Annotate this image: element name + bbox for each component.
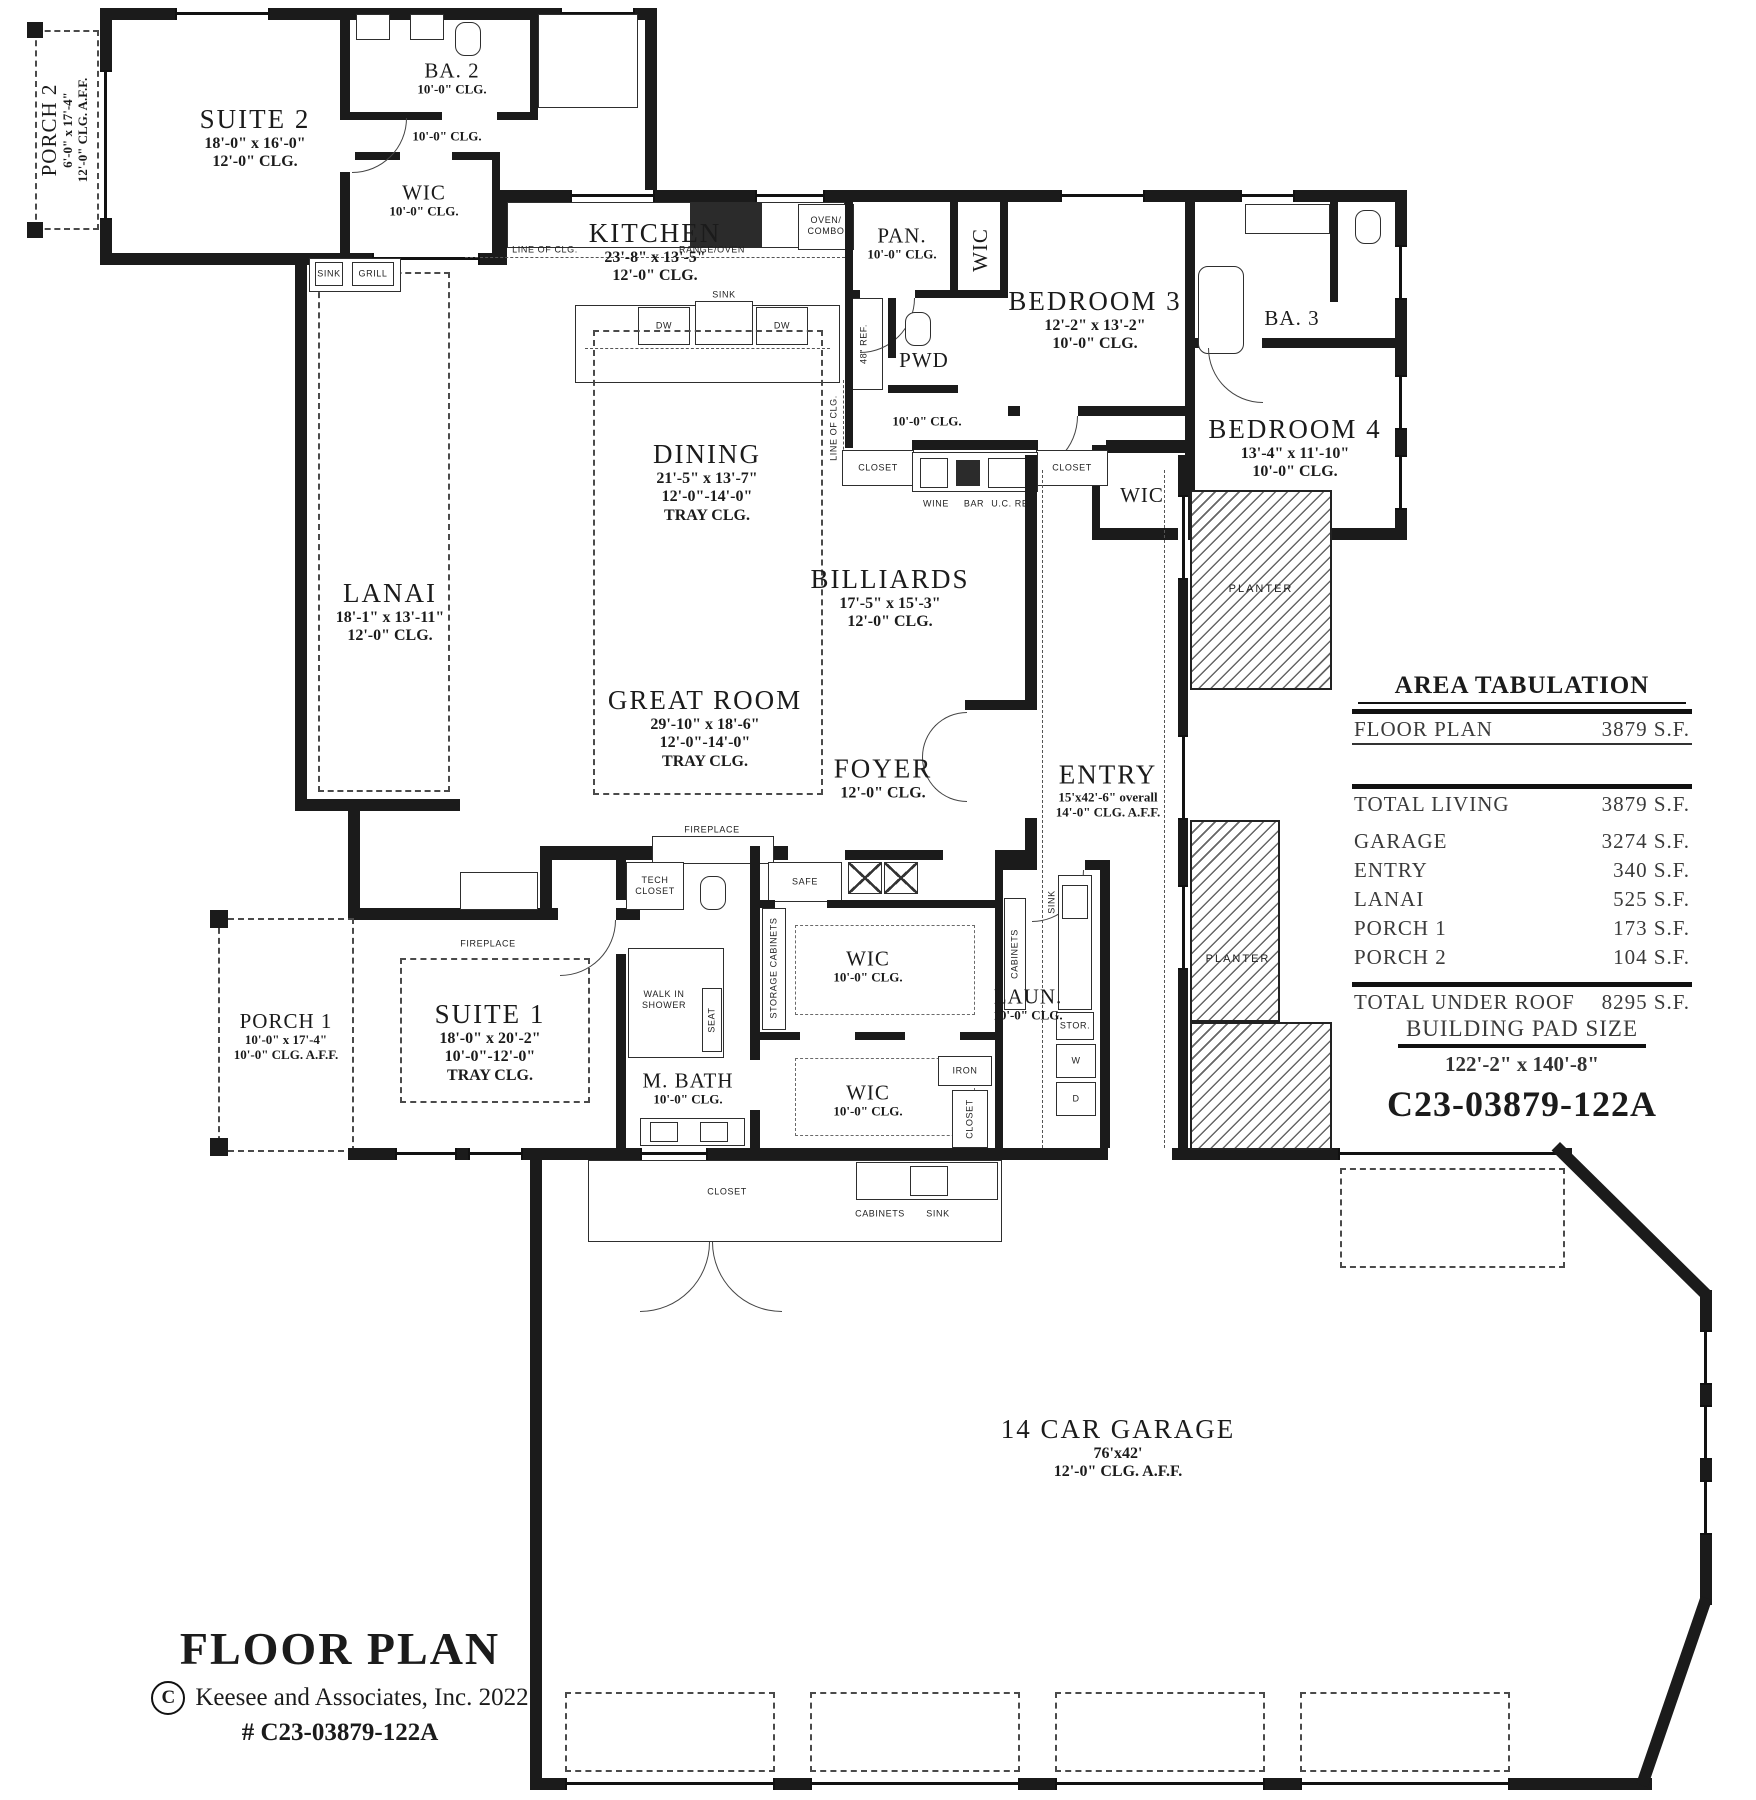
room-name: WIC [833,1080,902,1104]
room-name: WIC [1120,483,1164,507]
room-name: WIC [833,946,902,970]
room-name: M. BATH [642,1068,733,1092]
title-block: FLOOR PLAN C Keesee and Associates, Inc.… [120,1622,560,1747]
room-clg: 10'-0" CLG. [412,130,481,145]
window [1338,1148,1566,1160]
room-name: LAUN. [993,984,1062,1008]
label-text: CLOSET [635,886,675,897]
room-label-suite2: SUITE 2 18'-0" x 16'-0" 12'-0" CLG. [200,104,311,172]
room-label-great-room: GREAT ROOM 29'-10" x 18'-6" 12'-0"-14'-0… [608,685,802,771]
area-row-value: 173 S.F. [1613,916,1690,941]
window [1178,735,1188,820]
room-clg: TRAY CLG. [435,1067,546,1085]
wall [845,298,853,448]
wall [750,1110,760,1148]
room-clg: 12'-0" CLG. [200,154,311,172]
area-row-label: TOTAL LIVING [1354,792,1510,817]
hall-clg-label: 10'-0" CLG. [892,415,961,430]
porch-post [210,910,228,928]
window [1395,245,1407,300]
wall [340,8,350,120]
area-row: FLOOR PLAN 3879 S.F. [1352,714,1692,743]
wall [645,8,657,202]
closet-label: CLOSET [707,1186,747,1197]
room-label-entry: ENTRY 15'x42'-6" overall 14'-0" CLG. A.F… [1056,760,1161,821]
storage-cabinets-label: STORAGE CABINETS [768,918,779,1019]
room-label-billiards: BILLIARDS 17'-5" x 15'-3" 12'-0" CLG. [811,564,970,632]
wall [295,799,460,811]
room-name: ENTRY [1056,760,1161,791]
wall [1330,202,1338,302]
area-tabulation-title: AREA TABULATION [1358,672,1686,704]
room-dim: 29'-10" x 18'-6" [608,716,802,734]
window [1700,1405,1712,1460]
wall [1000,202,1008,298]
closet-label: CLOSET [858,462,898,473]
sink-label: SINK [1046,890,1057,913]
room-name: DINING [653,439,761,470]
area-row: TOTAL LIVING 3879 S.F. [1352,789,1692,818]
room-dim: 10'-0" x 17'-4" [234,1033,339,1048]
porch-post [210,1138,228,1156]
room-name: PORCH 1 [234,1009,339,1033]
room-clg: 12'-0" CLG. [834,784,933,802]
room-clg: 10'-0" CLG. [417,83,486,98]
line-of-clg-label: LINE OF CLG. [512,244,578,255]
room-name: KITCHEN [589,218,721,249]
stor-label: STOR. [1060,1020,1090,1031]
area-row: PORCH 2 104 S.F. [1352,942,1692,971]
door-swing [352,118,407,173]
fireplace-label: FIREPLACE [684,824,739,835]
room-clg: 12'-0" CLG. [336,628,444,646]
room-name: BEDROOM 3 [1008,286,1181,317]
entry-ceiling-line [1042,470,1044,1148]
label-text: TECH [635,875,675,886]
area-row-value: 104 S.F. [1613,945,1690,970]
room-label-wic-b3: WIC [968,228,992,272]
room-clg: 10'-0" CLG. [833,971,902,986]
chase [848,862,882,894]
room-label-laundry: LAUN. 10'-0" CLG. [993,984,1062,1023]
area-row: LANAI 525 S.F. [1352,884,1692,913]
room-name: PWD [899,348,949,372]
toilet [905,312,931,346]
room-label-ba3: BA. 3 [1264,306,1319,330]
oven-combo-label: OVEN/ COMBO [807,215,844,238]
area-row-label: GARAGE [1354,829,1448,854]
room-dim: 15'x42'-6" overall [1056,791,1161,806]
wall [995,850,1037,860]
mud-sink [910,1166,948,1196]
planter [1190,820,1280,1022]
room-clg: 10'-0" CLG. [642,1093,733,1108]
room-name: WIC [968,228,992,272]
room-dim: 18'-0" x 16'-0" [200,135,311,153]
room-name: BA. 3 [1264,306,1319,330]
garage-door [810,1778,1020,1790]
area-row: GARAGE 3274 S.F. [1352,826,1692,855]
fireplace [460,872,538,910]
lanai-ceiling-line [318,272,450,792]
door-swing [922,712,967,757]
planter [1190,1022,1332,1150]
area-row-value: 3274 S.F. [1602,829,1690,854]
chase [884,862,918,894]
closet-label: CLOSET [964,1099,975,1139]
door-swing [640,1242,710,1312]
room-name: SUITE 2 [200,104,311,135]
undercounter-fridge [988,458,1026,488]
garage-door [1300,1778,1510,1790]
window [1700,1330,1712,1385]
wall [340,172,350,265]
room-label-wic-b4: WIC [1120,483,1164,507]
room-label-foyer: FOYER 12'-0" CLG. [834,753,933,802]
door-swing [1208,348,1263,403]
wall [965,700,1037,710]
garage-door-track [1055,1692,1265,1772]
garage-door-track [565,1692,775,1772]
grill-label: GRILL [358,268,387,279]
spacer [1352,818,1692,826]
room-name: SUITE 1 [435,999,546,1030]
toilet [1355,210,1381,244]
room-name: GREAT ROOM [608,685,802,716]
room-clg: 12'-0" CLG. A.F.F. [76,78,91,183]
room-label-bedroom4: BEDROOM 4 13'-4" x 11'-10" 10'-0" CLG. [1208,414,1381,482]
area-row-value: 8295 S.F. [1602,990,1690,1015]
washer-label: W [1071,1055,1080,1066]
room-label-kitchen: KITCHEN 23'-8" x 13'-5" 12'-0" CLG. [589,218,721,286]
bar-sink [956,460,980,486]
room-label-dining: DINING 21'-5" x 13'-7" 12'-0"-14'-0" TRA… [653,439,761,525]
room-label-wic-m1: WIC 10'-0" CLG. [833,946,902,985]
garage-door [1055,1778,1265,1790]
label-text: WALK IN [642,989,686,1000]
room-clg: TRAY CLG. [608,753,802,771]
area-row-label: ENTRY [1354,858,1428,883]
window [1240,190,1295,202]
tech-closet-label: TECH CLOSET [635,875,675,898]
window [1178,885,1188,970]
sink-label: SINK [712,289,735,300]
room-dim: 6'-0" x 17'-4" [61,78,76,183]
garage-door [565,1778,775,1790]
wall [845,290,860,298]
wall [348,811,360,915]
wall [1636,1596,1712,1787]
room-label-lanai: LANAI 18'-1" x 13'-11" 12'-0" CLG. [336,578,444,646]
cabinets-label: CABINETS [855,1208,905,1219]
garage-door-track [1300,1692,1510,1772]
window [1178,495,1188,580]
window [640,1148,708,1160]
area-row-label: TOTAL UNDER ROOF [1354,990,1575,1015]
wall [915,290,1008,298]
cabinets-label: CABINETS [1009,929,1020,979]
room-name: WIC [389,180,458,204]
wall [1552,1142,1712,1300]
room-clg: 10'-0" CLG. A.F.F. [234,1048,339,1063]
wall [760,900,775,908]
area-row-label: PORCH 2 [1354,945,1447,970]
label-text: OVEN/ [807,215,844,226]
window [395,1148,457,1160]
hall-clg-label: 10'-0" CLG. [412,130,481,145]
window [1700,1480,1712,1535]
room-label-bedroom3: BEDROOM 3 12'-2" x 13'-2" 10'-0" CLG. [1008,286,1181,354]
planter-label: PLANTER [1229,583,1294,597]
wall [1025,455,1037,705]
wall [1185,202,1195,414]
wine-cooler [920,458,948,488]
wall [888,385,958,393]
window [1395,455,1407,510]
label-text: COMBO [807,226,844,237]
room-label-porch2: PORCH 2 6'-0" x 17'-4" 12'-0" CLG. A.F.F… [37,78,91,183]
wall [845,850,943,860]
wall [912,440,1038,450]
room-dim: 18'-1" x 13'-11" [336,609,444,627]
room-label-pantry: PAN. 10'-0" CLG. [867,223,936,262]
area-row: ENTRY 340 S.F. [1352,855,1692,884]
window [468,1148,523,1160]
line-of-clg-label: LINE OF CLG. [828,395,839,461]
bath-sink [700,1122,728,1142]
front-door-opening [1108,1148,1172,1160]
bath-sink [410,14,444,40]
label-text: SHOWER [642,1000,686,1011]
copyright-line: C Keesee and Associates, Inc. 2022 [120,1681,560,1715]
room-dim: 13'-4" x 11'-10" [1208,445,1381,463]
window [175,8,270,20]
room-name: BA. 2 [417,58,486,82]
wine-label: WINE [923,498,949,509]
window [1060,190,1145,202]
room-clg: 10'-0" CLG. [389,205,458,220]
room-clg: 14'-0" CLG. A.F.F. [1056,806,1161,821]
room-name: FOYER [834,753,933,784]
closet-label: CLOSET [1052,462,1092,473]
wall [1100,860,1110,1160]
room-dim: 76'x42' [1001,1445,1236,1463]
wall [845,202,853,298]
area-row-value: 525 S.F. [1613,887,1690,912]
area-row: TOTAL UNDER ROOF 8295 S.F. [1352,987,1692,1016]
room-label-wic-suite2: WIC 10'-0" CLG. [389,180,458,219]
wall [950,202,958,298]
laundry-sink [1062,885,1088,919]
garage-door-track [810,1692,1020,1772]
room-dim: 21'-5" x 13'-7" [653,470,761,488]
window [755,190,825,202]
spacer [1352,745,1692,779]
seat-label: SEAT [706,1007,717,1032]
room-clg: 10'-0" CLG. [1008,336,1181,354]
fireplace-label: FIREPLACE [460,938,515,949]
plan-code: C23-03879-122A [1352,1083,1692,1125]
window [100,70,112,220]
area-row-value: 340 S.F. [1613,858,1690,883]
parking-pad-outline [1340,1168,1565,1268]
entry-ceiling-line [1164,470,1166,1148]
room-label-mbath: M. BATH 10'-0" CLG. [642,1068,733,1107]
porch-post [27,22,43,38]
bar-label: BAR [964,498,984,509]
wall [760,1032,800,1040]
room-clg: 12'-0"-14'-0" [608,734,802,752]
building-pad-title: BUILDING PAD SIZE [1398,1016,1646,1048]
area-row-label: FLOOR PLAN [1354,717,1493,742]
room-dim: 12'-2" x 13'-2" [1008,317,1181,335]
room-clg: 12'-0"-14'-0" [653,488,761,506]
building-pad-block: BUILDING PAD SIZE 122'-2" x 140'-8" C23-… [1352,1016,1692,1125]
shower [538,14,638,108]
wall [888,298,896,358]
room-clg: 12'-0" CLG. A.F.F. [1001,1464,1236,1482]
room-label-porch1: PORCH 1 10'-0" x 17'-4" 10'-0" CLG. A.F.… [234,1009,339,1063]
planter-label: PLANTER [1206,953,1271,967]
floor-plan-sheet: PORCH 2 6'-0" x 17'-4" 12'-0" CLG. A.F.F… [0,0,1756,1800]
area-row-value: 3879 S.F. [1602,792,1690,817]
room-clg: 10'-0" CLG. [892,415,961,430]
room-label-pwd: PWD [899,348,949,372]
room-clg: 10'-0" CLG. [833,1105,902,1120]
wall [855,1032,905,1040]
wall [495,190,507,265]
wall [530,8,538,120]
wall [616,846,626,900]
room-name: BEDROOM 4 [1208,414,1381,445]
dryer-label: D [1072,1093,1079,1104]
wall [1106,440,1195,450]
area-row-label: LANAI [1354,887,1424,912]
area-row: PORCH 1 173 S.F. [1352,913,1692,942]
room-clg: 10'-0" CLG. [993,1009,1062,1024]
area-row-value: 3879 S.F. [1602,717,1690,742]
room-label-ba2: BA. 2 10'-0" CLG. [417,58,486,97]
room-name: PORCH 2 [37,78,61,183]
wall [1078,406,1195,416]
door-swing [712,1242,782,1312]
room-dim: 23'-8" x 13'-5" [589,249,721,267]
bath-vanity [1245,204,1330,234]
plan-number: # C23-03879-122A [120,1719,560,1747]
building-pad-size: 122'-2" x 140'-8" [1352,1052,1692,1077]
room-label-suite1: SUITE 1 18'-0" x 20'-2" 10'-0"-12'-0" TR… [435,999,546,1085]
room-label-wic-m2: WIC 10'-0" CLG. [833,1080,902,1119]
area-row-label: PORCH 1 [1354,916,1447,941]
iron-label: IRON [953,1065,978,1076]
room-name: 14 CAR GARAGE [1001,1414,1236,1445]
room-clg: 10'-0" CLG. [1208,464,1381,482]
wall [827,900,1003,908]
copyright-text: Keesee and Associates, Inc. 2022 [195,1684,528,1712]
wall [750,846,760,1060]
wall [1262,338,1395,348]
porch-post [27,222,43,238]
wall [540,846,552,916]
room-dim: 17'-5" x 15'-3" [811,595,970,613]
room-clg: 10'-0"-12'-0" [435,1048,546,1066]
walk-in-shower-label: WALK IN SHOWER [642,989,686,1012]
safe-label: SAFE [792,876,818,887]
room-name: PAN. [867,223,936,247]
room-dim: 18'-0" x 20'-2" [435,1030,546,1048]
toilet [700,876,726,910]
room-label-garage: 14 CAR GARAGE 76'x42' 12'-0" CLG. A.F.F. [1001,1414,1236,1482]
wall [616,954,626,1148]
room-name: BILLIARDS [811,564,970,595]
wall [1008,406,1020,416]
spacer [1352,971,1692,977]
wall [295,253,307,811]
copyright-icon: C [151,1681,185,1715]
window [1395,375,1407,430]
sink-label: SINK [926,1208,949,1219]
bath-sink [356,14,390,40]
room-name: LANAI [336,578,444,609]
bath-sink [650,1122,678,1142]
window [570,190,655,202]
room-clg: 12'-0" CLG. [811,614,970,632]
room-clg: 10'-0" CLG. [867,248,936,263]
area-tabulation-panel: AREA TABULATION FLOOR PLAN 3879 S.F. TOT… [1352,672,1692,1125]
sink-label: SINK [317,268,340,279]
room-clg: TRAY CLG. [653,507,761,525]
room-clg: 12'-0" CLG. [589,268,721,286]
toilet [455,22,481,56]
bathtub [1198,266,1244,354]
sheet-title: FLOOR PLAN [120,1622,560,1675]
